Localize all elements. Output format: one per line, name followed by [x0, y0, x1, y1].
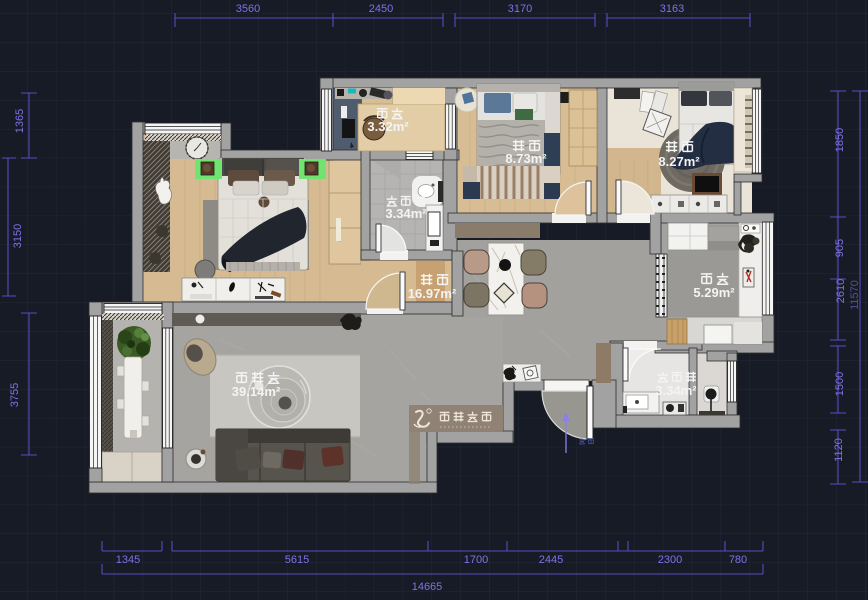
- svg-text:3.32m²: 3.32m²: [367, 119, 409, 134]
- svg-text:905: 905: [834, 239, 846, 257]
- svg-text:8.27m²: 8.27m²: [658, 154, 700, 169]
- svg-text:1365: 1365: [14, 109, 26, 133]
- svg-text:8.73m²: 8.73m²: [505, 151, 547, 166]
- svg-text:3163: 3163: [660, 3, 684, 15]
- svg-text:3.34m²: 3.34m²: [385, 206, 427, 221]
- svg-text:11570: 11570: [849, 280, 861, 310]
- svg-text:14665: 14665: [412, 581, 443, 593]
- svg-text:1500: 1500: [834, 372, 846, 396]
- svg-text:2445: 2445: [539, 554, 563, 566]
- svg-text:39.14m²: 39.14m²: [232, 384, 281, 399]
- svg-text:16.97m²: 16.97m²: [408, 286, 457, 301]
- svg-text:2450: 2450: [369, 3, 393, 15]
- svg-text:3560: 3560: [236, 3, 260, 15]
- svg-text:2610: 2610: [835, 279, 847, 303]
- svg-text:5615: 5615: [285, 554, 309, 566]
- svg-text:5.29m²: 5.29m²: [693, 285, 735, 300]
- svg-text:2300: 2300: [658, 554, 682, 566]
- svg-text:1700: 1700: [464, 554, 488, 566]
- svg-text:780: 780: [729, 554, 747, 566]
- svg-text:1120: 1120: [833, 438, 845, 462]
- svg-text:3170: 3170: [508, 3, 532, 15]
- svg-text:3.34m²: 3.34m²: [655, 383, 697, 398]
- svg-text:3755: 3755: [9, 383, 21, 407]
- svg-text:3150: 3150: [12, 224, 24, 248]
- svg-text:1850: 1850: [834, 128, 846, 152]
- svg-text:1345: 1345: [116, 554, 140, 566]
